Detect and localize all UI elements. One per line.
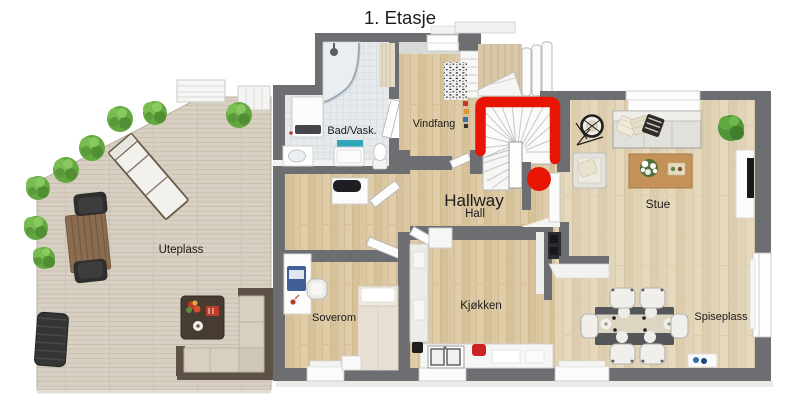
svg-text:Uteplass: Uteplass xyxy=(159,244,204,256)
svg-text:Soverom: Soverom xyxy=(312,312,356,324)
svg-text:Bad/Vask.: Bad/Vask. xyxy=(327,125,376,137)
svg-text:Stue: Stue xyxy=(646,197,671,211)
svg-text:1. Etasje: 1. Etasje xyxy=(364,7,436,28)
svg-text:Vindfang: Vindfang xyxy=(413,118,455,130)
svg-text:Hall: Hall xyxy=(465,208,485,220)
svg-text:Spiseplass: Spiseplass xyxy=(694,311,748,323)
svg-text:Kjøkken: Kjøkken xyxy=(460,300,502,312)
